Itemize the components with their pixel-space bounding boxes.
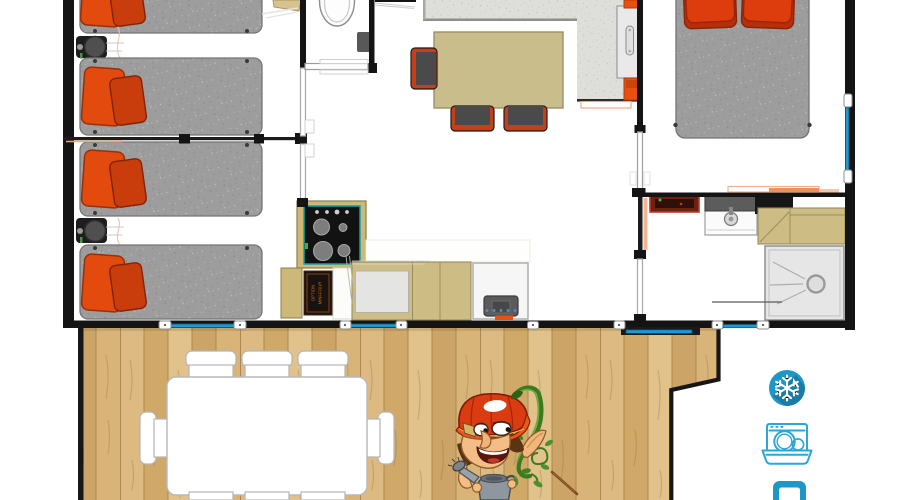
svg-text:MINI-FOUR: MINI-FOUR (318, 282, 323, 305)
svg-text:OPTION: OPTION (311, 285, 316, 301)
